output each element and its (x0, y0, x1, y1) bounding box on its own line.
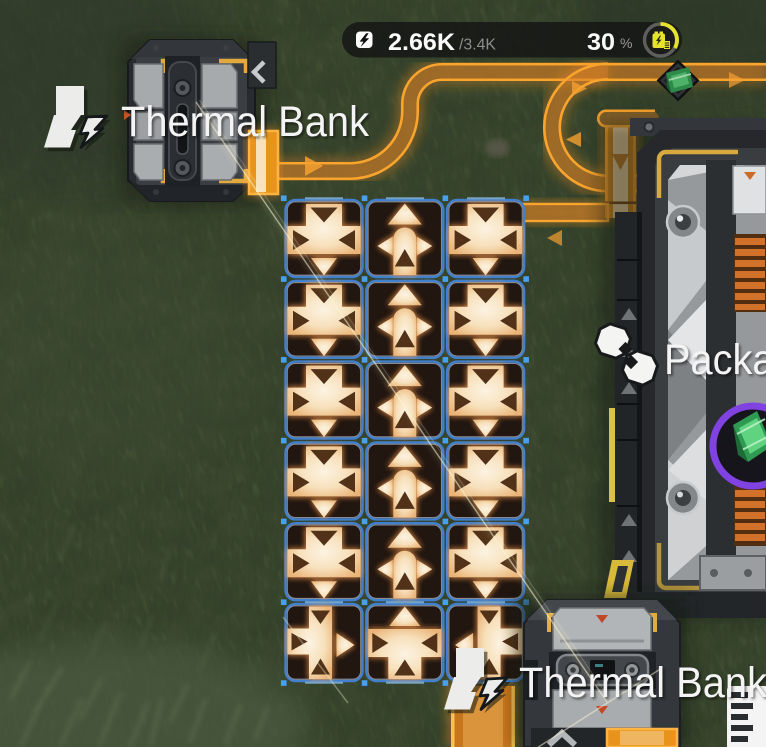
svg-text:%: % (620, 35, 632, 51)
svg-text:Packager: Packager (664, 336, 766, 384)
svg-text:2.66K: 2.66K (388, 29, 456, 56)
svg-text:/3.4K: /3.4K (459, 37, 496, 54)
svg-text:30: 30 (587, 29, 615, 56)
svg-text:Thermal Bank: Thermal Bank (121, 98, 369, 146)
svg-text:Thermal Bank: Thermal Bank (519, 659, 766, 707)
